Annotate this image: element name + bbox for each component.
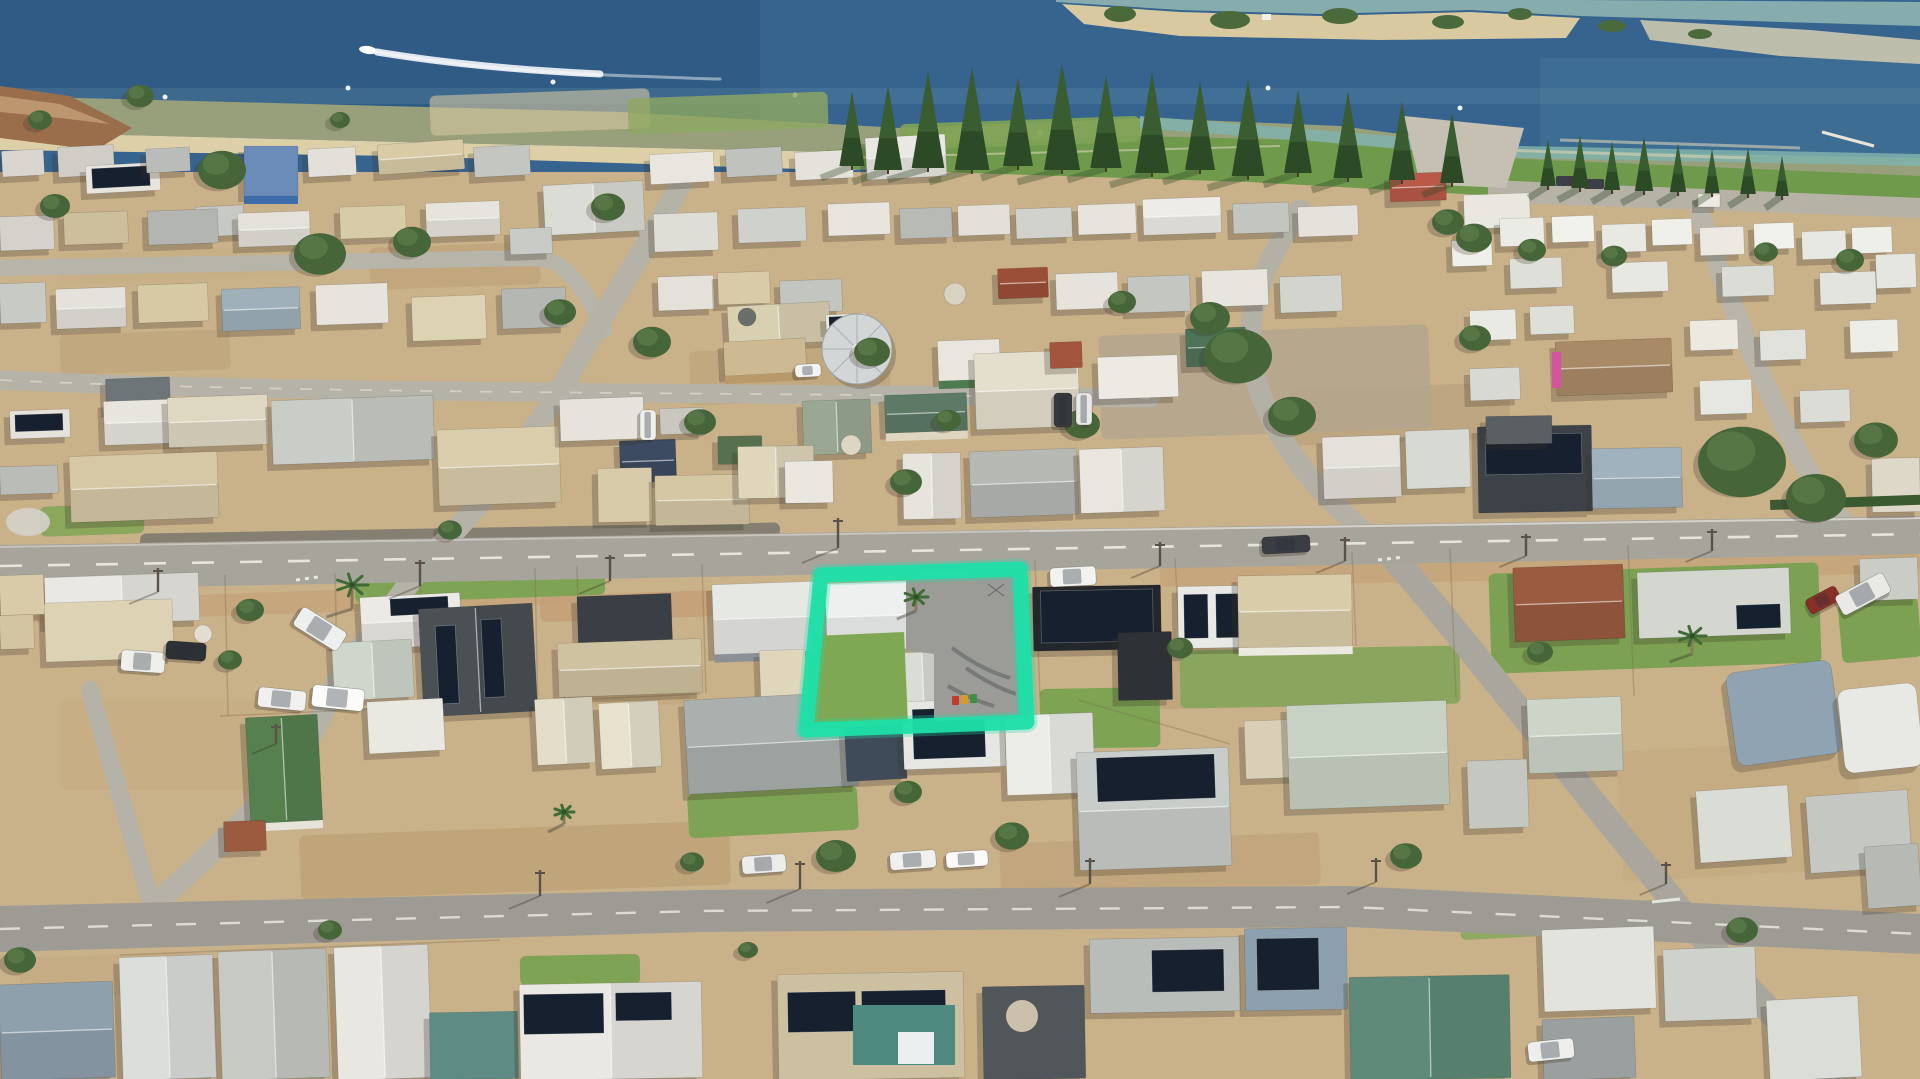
aerial-photo: [0, 0, 1920, 1079]
aerial-scene: [0, 0, 1920, 1079]
